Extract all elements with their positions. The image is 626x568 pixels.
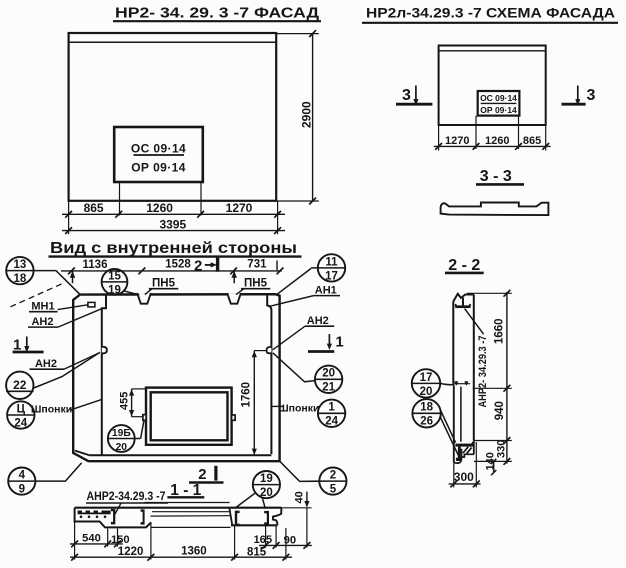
svg-text:АНР2- 34.29.3 -7: АНР2- 34.29.3 -7 [477,336,489,408]
svg-text:3: 3 [587,87,596,104]
svg-text:940: 940 [494,401,506,420]
svg-text:АН2: АН2 [31,316,53,328]
svg-text:Шпонки: Шпонки [278,402,319,414]
svg-text:2900: 2900 [299,101,313,128]
svg-text:22: 22 [13,378,27,392]
svg-text:26: 26 [420,416,433,428]
svg-text:АН1: АН1 [315,285,337,297]
svg-text:865: 865 [523,135,541,147]
svg-text:90: 90 [284,535,296,547]
svg-text:455: 455 [118,392,130,410]
svg-text:АН2: АН2 [307,315,329,327]
svg-text:15: 15 [108,270,121,282]
svg-text:5: 5 [330,484,337,496]
svg-text:1: 1 [335,334,343,351]
svg-text:3395: 3395 [159,217,186,231]
svg-text:18: 18 [14,273,27,285]
svg-text:ОР 09·14: ОР 09·14 [480,105,517,115]
svg-text:1220: 1220 [118,546,144,558]
svg-text:1260: 1260 [146,201,173,215]
svg-text:140: 140 [484,452,496,470]
svg-text:13: 13 [14,259,27,271]
svg-text:АНР2-34.29.3 -7: АНР2-34.29.3 -7 [87,491,166,503]
svg-text:1: 1 [328,402,335,414]
svg-text:24: 24 [325,416,338,428]
svg-text:20: 20 [420,386,433,398]
svg-text:ОС 09·14: ОС 09·14 [480,93,517,103]
svg-text:Шпонки: Шпонки [31,404,72,416]
svg-text:1270: 1270 [445,135,469,147]
svg-text:Ц: Ц [17,403,26,415]
svg-text:150: 150 [111,534,130,546]
svg-text:11: 11 [325,256,338,268]
svg-text:3: 3 [402,87,411,104]
svg-text:4: 4 [19,470,26,482]
svg-text:19Б: 19Б [112,428,131,439]
svg-text:165: 165 [253,534,272,546]
svg-text:1270: 1270 [226,201,253,215]
svg-text:19: 19 [260,473,273,485]
svg-text:ОС 09·14: ОС 09·14 [131,142,186,156]
svg-text:2: 2 [194,257,202,274]
svg-text:2 - 2: 2 - 2 [448,257,480,274]
svg-text:540: 540 [82,533,101,545]
svg-text:АН2: АН2 [35,358,57,370]
svg-text:1660: 1660 [494,318,506,344]
svg-text:3 - 3: 3 - 3 [480,168,512,185]
svg-text:24: 24 [14,417,27,429]
svg-text:2: 2 [198,466,206,483]
svg-text:1260: 1260 [485,135,509,147]
svg-text:20: 20 [260,487,273,499]
svg-text:330: 330 [496,440,508,458]
svg-text:ПН5: ПН5 [152,278,176,290]
svg-text:40: 40 [294,491,306,503]
svg-text:20: 20 [116,442,128,453]
svg-text:18: 18 [420,402,433,414]
svg-text:1760: 1760 [241,382,253,408]
svg-text:815: 815 [247,546,267,558]
svg-text:НР2л-34.29.3 -7 СХЕМА ФАСА: НР2л-34.29.3 -7 СХЕМА ФАСАДА [366,5,615,21]
svg-text:ПН5: ПН5 [244,278,268,290]
svg-text:300: 300 [454,470,474,484]
svg-text:9: 9 [19,484,25,496]
svg-text:2: 2 [330,470,336,482]
svg-text:1528: 1528 [165,259,191,271]
svg-text:МН1: МН1 [31,301,54,313]
svg-text:731: 731 [247,259,267,271]
svg-text:17: 17 [420,372,433,384]
svg-text:865: 865 [84,201,104,215]
svg-text:НР2- 34. 29. 3 -7 ФАСАД: НР2- 34. 29. 3 -7 ФАСАД [115,6,320,22]
svg-text:21: 21 [322,382,335,394]
svg-text:Вид с внутренней стороны: Вид с внутренней стороны [50,240,297,257]
svg-text:1136: 1136 [83,259,108,271]
svg-text:1360: 1360 [181,545,207,557]
svg-text:19: 19 [108,284,121,296]
svg-text:20: 20 [322,368,335,380]
svg-text:17: 17 [325,270,338,282]
svg-text:ОР 09·14: ОР 09·14 [131,161,186,175]
